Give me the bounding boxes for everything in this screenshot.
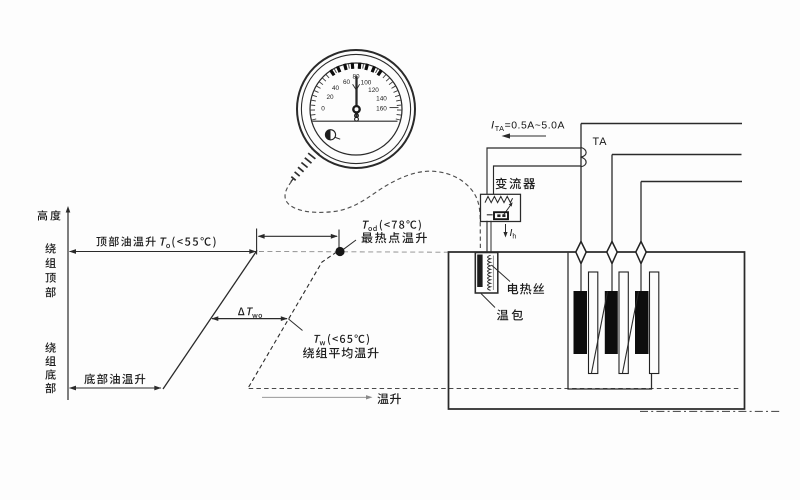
- svg-text:TA: TA: [593, 136, 608, 148]
- svg-text:100: 100: [361, 80, 372, 87]
- svg-text:40: 40: [332, 85, 340, 92]
- svg-text:0: 0: [321, 106, 325, 113]
- svg-text:20: 20: [326, 94, 334, 101]
- svg-text:60: 60: [343, 79, 351, 86]
- svg-text:140: 140: [376, 96, 387, 103]
- svg-text:120: 120: [368, 87, 379, 94]
- svg-text:160: 160: [376, 106, 387, 113]
